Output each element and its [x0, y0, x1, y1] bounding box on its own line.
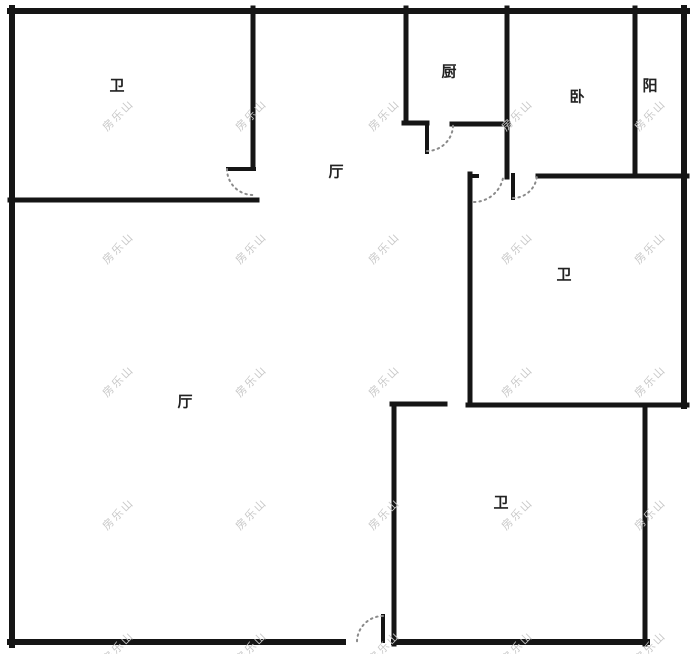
room-label-hall-main: 厅 — [177, 391, 192, 412]
room-label-bedroom: 卧 — [569, 86, 584, 107]
inner-walls — [10, 8, 687, 644]
room-label-hall-upper: 厅 — [328, 161, 343, 182]
door-arc-bath-tl — [227, 169, 253, 195]
room-label-balcony: 阳 — [642, 75, 657, 96]
room-label-kitchen: 厨 — [441, 61, 456, 82]
room-label-bathroom-bottom: 卫 — [493, 492, 508, 513]
outer-walls — [10, 8, 687, 645]
floor-plan-canvas: 卫 厨 卧 阳 厅 卫 厅 卫 房乐山房乐山房乐山房乐山房乐山房乐山房乐山房乐山… — [0, 0, 700, 654]
door-arc-entrance — [357, 616, 383, 642]
door-arc-bath-mid — [474, 178, 503, 202]
room-label-bathroom-top-left: 卫 — [109, 75, 124, 96]
door-arc-kitchen — [427, 125, 453, 151]
walls-layer — [0, 0, 700, 654]
door-arc-bedroom — [513, 174, 537, 198]
room-label-bathroom-mid-right: 卫 — [556, 264, 571, 285]
